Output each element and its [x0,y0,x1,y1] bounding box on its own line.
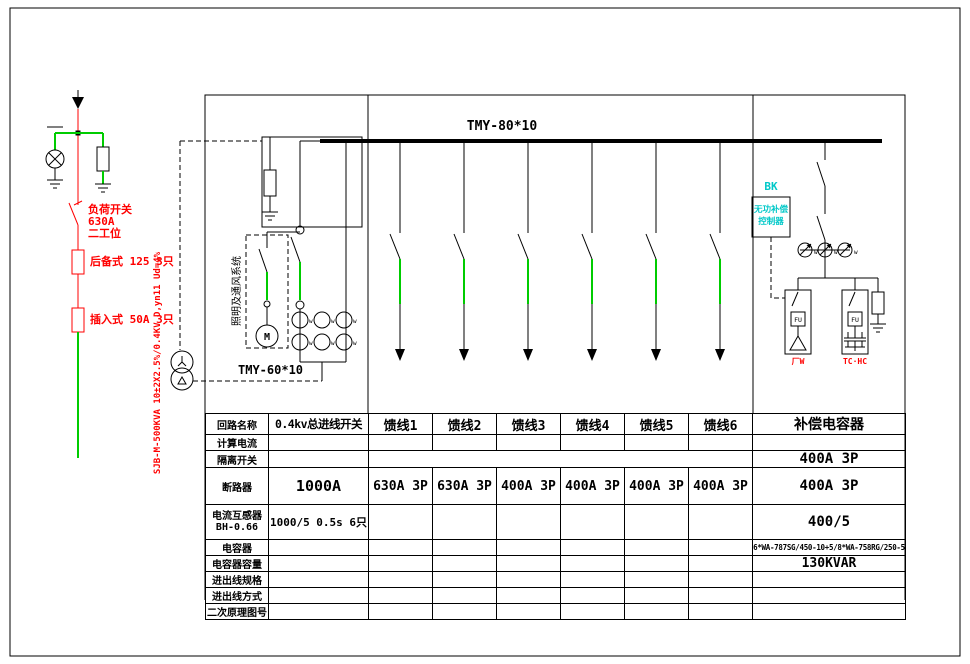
table-cell [689,435,753,451]
transformer-icon [171,351,193,390]
table-cell [269,572,369,588]
table-cell [433,505,497,540]
table-cell [497,588,561,604]
table-cell [689,588,753,604]
row-isolator: 隔离开关 400A 3P [206,451,906,468]
col-header-feeder-1: 馈线1 [369,414,433,435]
table-cell [433,435,497,451]
table-cell [625,588,689,604]
discharge-resistor-icon [872,292,884,314]
pt-fuse-icon [264,170,276,196]
table-cell [433,604,497,620]
row-label-ct: 电流互感器 BH-0.66 [206,505,269,540]
cap-group-label: TC·HC [843,357,867,366]
transformer-spec-label: SJB-M-500KVA 10±2X2.5%/0.4KV D,yn11 Ud=4… [153,251,163,474]
col-header-feeder-4: 馈线4 [561,414,625,435]
table-cell [497,572,561,588]
table-cell [433,540,497,556]
table-cell [625,540,689,556]
breaker-feeder-6: 400A 3P [689,468,753,505]
main-breaker-icon [291,237,300,262]
incoming-bus-label: TMY-60*10 [238,363,303,377]
hv-labels: 负荷开关 630A 二工位 后备式 125 3只 插入式 50A 3只 SJB-… [88,202,174,474]
capacitor-capacity-value: 130KVAR [753,556,906,572]
col-header-feeder-3: 馈线3 [497,414,561,435]
col-header-main-incoming: 0.4kv总进线开关 [269,414,369,435]
row-capacitor-capacity: 电容器容量 130KVAR [206,556,906,572]
row-label-capacitor-capacity: 电容器容量 [206,556,269,572]
table-cell [561,435,625,451]
breaker-feeder-1: 630A 3P [369,468,433,505]
col-header-feeder-6: 馈线6 [689,414,753,435]
table-cell [625,505,689,540]
feeder-4 [582,143,597,361]
table-cell [561,588,625,604]
load-switch-type: 二工位 [88,226,121,240]
table-cell [269,588,369,604]
table-cell [625,572,689,588]
table-cell [269,556,369,572]
table-cell [433,588,497,604]
row-label-inout-mode: 进出线方式 [206,588,269,604]
row-label-calc-current: 计算电流 [206,435,269,451]
row-label-secondary-diagram: 二次原理图号 [206,604,269,620]
table-cell [625,556,689,572]
feeder-3 [518,143,533,361]
col-header-feeder-2: 馈线2 [433,414,497,435]
ct-capacitor-value: 400/5 [753,505,906,540]
row-label-inout-spec: 进出线规格 [206,572,269,588]
table-cell [753,435,906,451]
table-cell [561,604,625,620]
row-inout-mode: 进出线方式 [206,588,906,604]
row-secondary-diagram: 二次原理图号 [206,604,906,620]
busbar-label: TMY-80*10 [467,119,538,134]
row-ct: 电流互感器 BH-0.66 1000/5 0.5s 6只 400/5 [206,505,906,540]
lighting-ventilation-branch: M 照明及通风系统 [230,232,300,348]
table-cell [689,604,753,620]
breaker-capacitor-value: 400A 3P [753,468,906,505]
table-cell [497,604,561,620]
table-cell [497,556,561,572]
row-breaker: 断路器 1000A 630A 3P 630A 3P 400A 3P 400A 3… [206,468,906,505]
feeder-2 [454,143,469,361]
capacitor-model-value: 6*WA-787SG/450-10+5/8*WA-758RG/250-5 [753,540,906,556]
table-cell [369,588,433,604]
row-label-isolator: 隔离开关 [206,451,269,468]
table-cell [269,540,369,556]
table-cell [753,572,906,588]
delta-connection-icon [790,336,806,350]
breaker-feeder-4: 400A 3P [561,468,625,505]
table-cell [269,604,369,620]
backup-fuse-icon [72,250,84,274]
table-cell [753,604,906,620]
col-header-capacitor: 补偿电容器 [753,414,906,435]
main-incoming-cell: TMY-60*10 [238,137,362,381]
table-cell [433,572,497,588]
capacitor-compensation-cell: FU 厂W FU TC·HC BK 无功补偿 控制器 [752,143,886,366]
plugin-fuse-icon [72,308,84,332]
row-label-capacitor: 电容器 [206,540,269,556]
table-cell [689,572,753,588]
table-cell [369,435,433,451]
table-cell [497,540,561,556]
feeder-5 [646,143,661,361]
feeder-1 [390,143,405,361]
motor-mark: M [264,332,270,343]
table-cell [561,556,625,572]
main-busbar: TMY-80*10 [320,119,882,141]
delta-group-label: 厂W [792,357,805,366]
table-cell [561,505,625,540]
feeders [390,143,725,361]
isolator-capacitor-value: 400A 3P [753,451,906,468]
ct-label-line1: 电流互感器 [206,511,268,522]
table-cell [369,556,433,572]
table-cell [689,505,753,540]
table-cell [269,451,369,468]
col-header-feeder-5: 馈线5 [625,414,689,435]
row-calc-current: 计算电流 [206,435,906,451]
table-cell [369,505,433,540]
breaker-main-value: 1000A [269,468,369,505]
fuse-icon [97,147,109,171]
fuse-mark: FU [851,316,859,324]
table-cell [369,572,433,588]
table-cell [497,435,561,451]
row-label-breaker: 断路器 [206,468,269,505]
table-cell [497,505,561,540]
table-cell [433,556,497,572]
table-cell [561,572,625,588]
table-cell [369,604,433,620]
controller-tag: BK [764,180,778,193]
row-label-circuit-name: 回路名称 [206,414,269,435]
table-cell [561,540,625,556]
table-cell-merged [369,451,753,468]
spec-table: 回路名称 0.4kv总进线开关 馈线1 馈线2 馈线3 馈线4 馈线5 馈线6 … [205,413,906,620]
table-cell [625,435,689,451]
table-cell [689,540,753,556]
ct-label-line2: BH-0.66 [206,522,268,533]
breaker-feeder-5: 400A 3P [625,468,689,505]
row-inout-spec: 进出线规格 [206,572,906,588]
row-circuit-name: 回路名称 0.4kv总进线开关 馈线1 馈线2 馈线3 馈线4 馈线5 馈线6 … [206,414,906,435]
lighting-branch-label: 照明及通风系统 [230,256,243,326]
table-cell [369,540,433,556]
ct-main-value: 1000/5 0.5s 6只 [269,505,369,540]
load-switch-name: 负荷开关 [88,202,132,216]
table-cell [269,435,369,451]
feeder-6 [710,143,725,361]
table-cell [753,588,906,604]
fuse-mark: FU [794,316,802,324]
controller-name-1: 无功补偿 [753,204,789,215]
breaker-feeder-2: 630A 3P [433,468,497,505]
load-switch-icon [69,203,78,225]
incoming-arrow-icon [72,97,84,109]
hv-incoming-circuit [46,90,322,458]
table-cell [625,604,689,620]
row-capacitor: 电容器 6*WA-787SG/450-10+5/8*WA-758RG/250-5 [206,540,906,556]
controller-name-2: 控制器 [758,216,784,227]
table-cell [689,556,753,572]
breaker-feeder-3: 400A 3P [497,468,561,505]
